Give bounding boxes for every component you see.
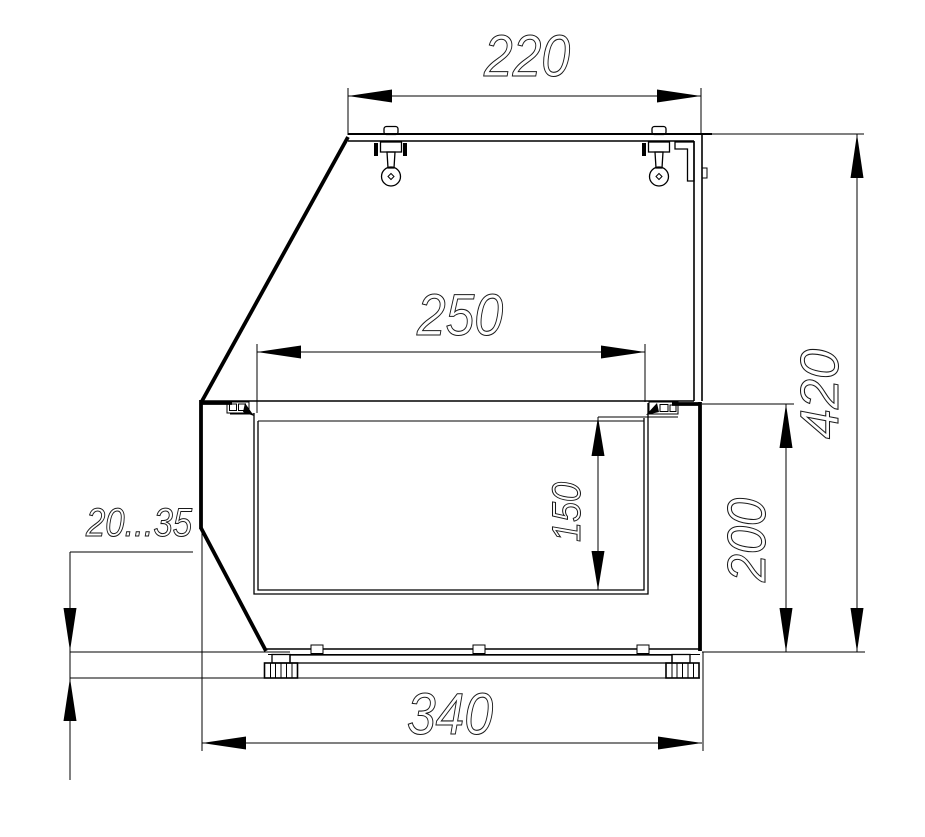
drawing-canvas: 220 250 150 200 420 340: [0, 0, 925, 837]
arrowhead-left: [348, 90, 392, 103]
rail-slot-2: [670, 405, 676, 412]
technical-drawing: 220 250 150 200 420 340: [0, 0, 925, 837]
arrowhead-right: [657, 90, 701, 103]
dimension-200: 200: [702, 404, 794, 652]
dimension-340: 340: [202, 529, 703, 751]
rail-slot-1: [230, 404, 237, 411]
base-assembly: [70, 645, 865, 678]
arrowhead-left: [202, 737, 246, 750]
arrowhead-left: [257, 346, 301, 359]
front-lower-slant: [201, 528, 266, 651]
back-panel: [675, 135, 707, 401]
foot-knurling: [672, 664, 694, 678]
arrowhead-bottom: [780, 608, 793, 652]
slanted-glass-line: [202, 137, 348, 401]
arrowhead-lower: [64, 678, 77, 721]
corner-bracket: [675, 142, 694, 181]
top-shelf: [348, 134, 864, 141]
arrowhead-upper: [64, 608, 77, 651]
hanger-ring-hole: [656, 174, 662, 180]
left-adjustable-foot: [265, 663, 298, 678]
hanger-ring: [650, 167, 669, 186]
hanger-flange-right: [403, 143, 407, 156]
bottom-clip: [311, 645, 323, 654]
arrowhead-top: [851, 134, 864, 178]
dim-label-250: 250: [416, 283, 503, 348]
dim-label-340: 340: [407, 682, 493, 747]
hanger-ring: [382, 167, 401, 186]
arrowhead-bottom: [592, 551, 605, 590]
dim-label-420: 420: [790, 349, 850, 439]
dim-label-20-35: 20...35: [85, 501, 193, 545]
arrowhead-right: [658, 737, 702, 750]
dimension-420: 420: [790, 134, 864, 652]
right-adjustable-foot: [666, 663, 699, 678]
arrowhead-bottom: [851, 608, 864, 652]
dimension-150: 150: [545, 417, 645, 590]
front-glass-and-left-contour: [201, 137, 348, 651]
bottom-clip: [637, 645, 649, 654]
left-foot-stem: [272, 655, 290, 664]
dim-label-150: 150: [545, 482, 589, 542]
rail-slot-1: [660, 405, 668, 412]
hanger-clamp: [381, 142, 402, 152]
hanger-arm: [387, 152, 395, 168]
left-hanger: [374, 127, 407, 187]
dimension-220: 220: [348, 24, 701, 135]
right-hanger: [642, 127, 670, 187]
hanger-flange-left: [642, 143, 646, 156]
hanger-clamp: [649, 142, 670, 152]
base-bar: [290, 655, 672, 663]
dimension-250: 250: [257, 283, 645, 413]
foot-knurling: [271, 664, 293, 678]
dimension-20-35: 20...35: [64, 501, 194, 780]
dim-label-220: 220: [483, 24, 570, 89]
arrowhead-right: [601, 346, 645, 359]
hanger-arm: [655, 152, 663, 168]
hanger-ring-hole: [388, 174, 394, 180]
arrowhead-top: [592, 417, 605, 456]
right-foot-stem: [672, 655, 690, 664]
counter-body: [202, 401, 700, 655]
hanger-flange-left: [374, 143, 378, 156]
dim-label-200: 200: [717, 498, 777, 583]
bottom-clip: [473, 645, 485, 654]
display-well: [230, 403, 678, 594]
